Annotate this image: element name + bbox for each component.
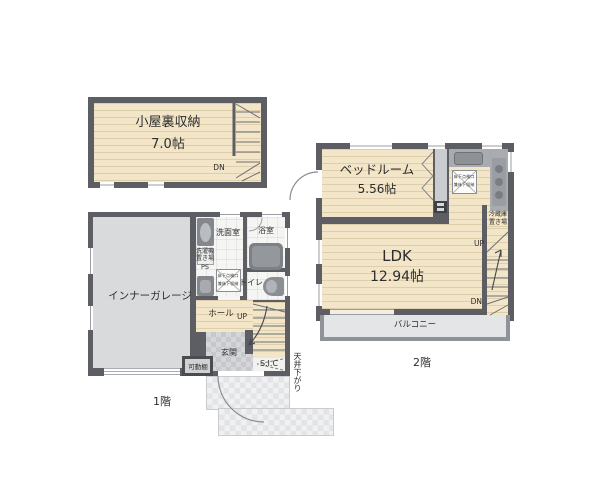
hall-up-label: UP (237, 313, 253, 321)
balcony-label: バルコニー (375, 321, 455, 330)
toilet-bowl-inner (266, 280, 277, 293)
stairs1-floor (253, 302, 285, 358)
hatch-1f-label-line2: 兼床下収納 (216, 282, 241, 287)
movable-shelf-label: 可動棚 (184, 364, 212, 371)
stove-burner-icon (495, 178, 503, 186)
stairs-dn-label: DN (460, 298, 482, 306)
garage-label: インナーガレージ (104, 291, 196, 303)
window (350, 143, 392, 149)
bedroom-size-label: 5.56帖 (320, 183, 434, 196)
pipe-space-inner (200, 280, 211, 293)
porch-step (218, 408, 334, 436)
toilet-label: トイレ (238, 279, 264, 288)
window (285, 228, 290, 248)
attic-room-label: 小屋裏収納 (108, 116, 228, 130)
laundry-label-line2: 置き場 (196, 256, 214, 263)
entrance-label: 玄関 (213, 349, 245, 358)
window (428, 143, 445, 149)
ldk-label: LDK (352, 248, 442, 265)
bedroom-door-arc-icon (290, 172, 318, 200)
ceiling-drop-label: 天井下がり (289, 344, 301, 400)
hall-label: ホール (204, 310, 238, 319)
bathtub-inner (252, 246, 280, 267)
window (262, 212, 282, 217)
second-floor-label: 2階 (390, 357, 454, 369)
window (220, 212, 240, 217)
window (316, 240, 322, 264)
hatch-1f-label-line1: 床下点検口 (216, 274, 241, 279)
attic-size-label: 7.0帖 (108, 138, 228, 152)
window (148, 182, 164, 188)
hatch-2f-label-line2: 兼床下収納 (452, 183, 477, 188)
stairs-up-label: UP (462, 240, 484, 248)
fridge-label-line1: 冷蔵庫 (486, 212, 510, 219)
floor-plan-canvas: 小屋裏収納 7.0帖 DN インナーガレージ 洗面室 浴室 洗濯機 置き場 PS… (0, 0, 600, 501)
ps-label: PS (196, 264, 214, 271)
first-floor-label: 1階 (130, 396, 194, 408)
window (508, 152, 514, 172)
window (316, 284, 322, 306)
bathroom-label: 浴室 (248, 227, 284, 236)
closet-marker-dot (437, 203, 444, 206)
kitchen-sink-icon (454, 152, 483, 165)
stairs2-floor (487, 228, 508, 315)
window (482, 143, 502, 149)
balcony-sliding-door (330, 309, 394, 315)
attic-dn-label: DN (206, 164, 232, 172)
fridge-label-line2: 置き場 (486, 220, 510, 227)
stove-burner-icon (495, 165, 503, 173)
hatch-2f-label-line1: 床下点検口 (452, 175, 477, 180)
ldk-floor (322, 224, 482, 309)
sic-label: S.I.C (252, 360, 286, 369)
porch-step (206, 376, 290, 410)
bedroom-label: ベッドルーム (320, 163, 434, 177)
stair-side-block (245, 330, 253, 354)
garage-door-icon (104, 368, 180, 376)
washroom-door-opening (218, 296, 240, 300)
window (285, 276, 290, 296)
washroom-label: 洗面室 (210, 229, 246, 238)
window (100, 182, 114, 188)
window (88, 306, 93, 330)
stove-burner-icon (495, 191, 503, 199)
closet-marker-dot (437, 208, 444, 211)
ldk-size-label: 12.94帖 (342, 270, 452, 285)
window (88, 248, 93, 274)
